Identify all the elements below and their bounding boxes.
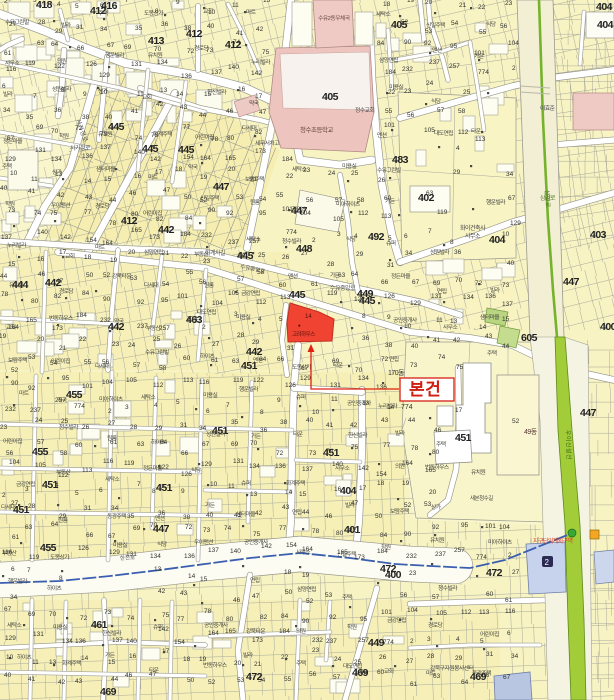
svg-text:공인중개사: 공인중개사 bbox=[244, 538, 269, 546]
svg-text:78: 78 bbox=[312, 528, 320, 535]
svg-text:58: 58 bbox=[360, 669, 368, 676]
svg-text:36: 36 bbox=[454, 249, 462, 256]
svg-text:가든: 가든 bbox=[205, 501, 216, 509]
svg-text:6: 6 bbox=[206, 408, 210, 415]
svg-text:77: 77 bbox=[383, 442, 391, 449]
svg-text:어린이집: 어린이집 bbox=[143, 209, 162, 217]
svg-text:67: 67 bbox=[108, 533, 116, 540]
svg-text:미아하이츠: 미아하이츠 bbox=[99, 395, 124, 403]
svg-text:112: 112 bbox=[256, 299, 267, 306]
svg-text:137: 137 bbox=[502, 301, 513, 308]
svg-text:10: 10 bbox=[502, 231, 510, 238]
svg-text:7: 7 bbox=[137, 481, 141, 488]
svg-text:63: 63 bbox=[25, 524, 33, 531]
svg-text:104: 104 bbox=[212, 300, 223, 307]
svg-text:유치원: 유치원 bbox=[9, 281, 23, 289]
svg-text:82: 82 bbox=[349, 527, 357, 534]
svg-text:21: 21 bbox=[254, 661, 262, 668]
svg-text:44: 44 bbox=[302, 509, 310, 516]
svg-text:7: 7 bbox=[33, 93, 37, 100]
svg-text:173: 173 bbox=[149, 234, 160, 241]
svg-text:92: 92 bbox=[28, 385, 36, 392]
svg-text:5: 5 bbox=[480, 638, 484, 645]
svg-text:40: 40 bbox=[306, 417, 314, 424]
svg-text:본건: 본건 bbox=[409, 380, 441, 399]
svg-text:사무소: 사무소 bbox=[335, 464, 350, 472]
svg-text:74: 74 bbox=[127, 615, 135, 622]
svg-text:14: 14 bbox=[285, 489, 293, 496]
svg-text:8: 8 bbox=[450, 239, 454, 246]
svg-text:61: 61 bbox=[4, 50, 12, 57]
svg-text:136: 136 bbox=[275, 463, 286, 470]
svg-text:95: 95 bbox=[461, 522, 469, 529]
svg-text:38: 38 bbox=[82, 114, 90, 121]
svg-text:어린이집: 어린이집 bbox=[3, 437, 22, 445]
svg-text:35: 35 bbox=[135, 25, 143, 32]
svg-text:142: 142 bbox=[358, 465, 369, 472]
svg-text:23: 23 bbox=[404, 88, 412, 95]
svg-text:44: 44 bbox=[109, 197, 117, 204]
svg-text:41: 41 bbox=[28, 676, 36, 683]
svg-text:84: 84 bbox=[185, 215, 193, 222]
svg-text:47: 47 bbox=[56, 278, 64, 285]
svg-text:42: 42 bbox=[158, 588, 166, 595]
svg-text:2: 2 bbox=[508, 552, 512, 559]
svg-text:25: 25 bbox=[153, 336, 161, 343]
svg-text:38: 38 bbox=[183, 514, 191, 521]
svg-text:43: 43 bbox=[75, 678, 83, 685]
svg-text:129: 129 bbox=[99, 72, 110, 79]
svg-text:483: 483 bbox=[392, 154, 409, 166]
svg-text:54: 54 bbox=[162, 281, 170, 288]
svg-text:4: 4 bbox=[57, 1, 61, 8]
svg-text:성원빌라: 성원빌라 bbox=[206, 430, 226, 438]
svg-text:75: 75 bbox=[253, 531, 261, 538]
svg-text:사무소: 사무소 bbox=[296, 548, 311, 556]
svg-text:95: 95 bbox=[360, 616, 368, 623]
svg-text:34: 34 bbox=[511, 653, 519, 660]
svg-text:세탁소: 세탁소 bbox=[376, 10, 391, 18]
svg-text:사무소: 사무소 bbox=[5, 59, 20, 67]
svg-text:빌라: 빌라 bbox=[490, 286, 501, 294]
svg-text:75: 75 bbox=[456, 364, 464, 371]
svg-text:6: 6 bbox=[404, 233, 408, 240]
svg-text:774: 774 bbox=[476, 554, 487, 561]
svg-text:주택: 주택 bbox=[436, 441, 446, 448]
svg-text:78: 78 bbox=[204, 608, 212, 615]
svg-text:90: 90 bbox=[302, 618, 310, 625]
svg-text:34: 34 bbox=[506, 171, 514, 178]
svg-text:42: 42 bbox=[350, 422, 358, 429]
svg-text:142: 142 bbox=[150, 156, 161, 163]
svg-text:136: 136 bbox=[82, 153, 93, 160]
svg-text:55: 55 bbox=[186, 269, 194, 276]
svg-text:44: 44 bbox=[502, 343, 510, 350]
svg-text:경로당: 경로당 bbox=[194, 44, 209, 52]
svg-text:41: 41 bbox=[326, 422, 334, 429]
svg-text:의원: 의원 bbox=[296, 627, 306, 635]
svg-text:한신빌라: 한신빌라 bbox=[348, 431, 368, 439]
svg-text:40: 40 bbox=[105, 114, 113, 121]
svg-text:24: 24 bbox=[35, 417, 43, 424]
svg-text:31: 31 bbox=[84, 505, 92, 512]
svg-text:154: 154 bbox=[183, 154, 194, 161]
svg-text:58: 58 bbox=[159, 365, 167, 372]
svg-text:70: 70 bbox=[455, 277, 463, 284]
svg-text:세탁소: 세탁소 bbox=[7, 621, 22, 629]
svg-text:5: 5 bbox=[279, 316, 283, 323]
svg-text:164: 164 bbox=[208, 630, 219, 637]
svg-text:14: 14 bbox=[81, 655, 89, 662]
svg-text:184: 184 bbox=[385, 69, 396, 76]
svg-text:36: 36 bbox=[362, 335, 370, 342]
svg-text:46: 46 bbox=[233, 597, 241, 604]
svg-text:금강연립: 금강연립 bbox=[387, 616, 406, 624]
svg-text:50: 50 bbox=[375, 513, 383, 520]
svg-text:38: 38 bbox=[385, 342, 393, 349]
svg-text:49동: 49동 bbox=[524, 428, 538, 436]
svg-text:46: 46 bbox=[129, 190, 137, 197]
svg-text:257: 257 bbox=[449, 63, 460, 70]
svg-text:78: 78 bbox=[411, 445, 419, 452]
svg-text:112: 112 bbox=[458, 129, 469, 136]
svg-text:9: 9 bbox=[176, 0, 180, 6]
svg-text:67: 67 bbox=[107, 42, 115, 49]
svg-text:472: 472 bbox=[486, 567, 503, 579]
svg-text:11: 11 bbox=[331, 396, 338, 403]
svg-text:25: 25 bbox=[351, 170, 359, 177]
svg-text:삼양연립: 삼양연립 bbox=[379, 56, 398, 64]
svg-text:232: 232 bbox=[201, 232, 212, 239]
svg-text:140: 140 bbox=[230, 548, 241, 555]
svg-text:22: 22 bbox=[79, 336, 87, 343]
svg-text:42: 42 bbox=[453, 337, 461, 344]
svg-text:미용실: 미용실 bbox=[236, 313, 250, 321]
svg-text:14: 14 bbox=[176, 91, 184, 98]
svg-text:샘터마을: 샘터마을 bbox=[236, 510, 256, 518]
svg-text:400: 400 bbox=[600, 321, 614, 333]
svg-text:교회: 교회 bbox=[142, 93, 152, 101]
svg-text:67: 67 bbox=[4, 606, 12, 613]
svg-text:113: 113 bbox=[381, 213, 392, 220]
svg-text:67: 67 bbox=[202, 441, 210, 448]
svg-text:447: 447 bbox=[563, 276, 580, 288]
svg-text:53: 53 bbox=[236, 194, 244, 201]
svg-text:유치원: 유치원 bbox=[471, 468, 485, 476]
svg-text:가든: 가든 bbox=[474, 52, 485, 60]
svg-text:404: 404 bbox=[597, 19, 614, 31]
svg-text:136: 136 bbox=[485, 293, 496, 300]
svg-text:28: 28 bbox=[28, 503, 36, 510]
svg-text:55: 55 bbox=[276, 192, 284, 199]
svg-text:11: 11 bbox=[228, 483, 235, 490]
svg-text:20: 20 bbox=[37, 336, 45, 343]
svg-text:134: 134 bbox=[51, 156, 62, 163]
svg-text:다세대: 다세대 bbox=[242, 124, 256, 132]
svg-text:수유2동우체국: 수유2동우체국 bbox=[318, 14, 351, 22]
svg-text:타운: 타운 bbox=[149, 666, 160, 674]
svg-text:445: 445 bbox=[289, 289, 306, 301]
svg-text:50: 50 bbox=[86, 272, 94, 279]
svg-text:75: 75 bbox=[162, 612, 170, 619]
svg-text:142: 142 bbox=[251, 70, 262, 77]
svg-text:54: 54 bbox=[259, 196, 267, 203]
svg-text:번동하우스: 번동하우스 bbox=[49, 314, 74, 322]
svg-text:113: 113 bbox=[280, 294, 291, 301]
svg-text:55: 55 bbox=[479, 29, 487, 36]
svg-text:42: 42 bbox=[57, 192, 65, 199]
svg-text:77: 77 bbox=[183, 124, 191, 131]
svg-text:131: 131 bbox=[131, 61, 142, 68]
svg-text:13: 13 bbox=[49, 659, 57, 666]
svg-text:다세대: 다세대 bbox=[144, 281, 158, 289]
svg-text:화계주택: 화계주택 bbox=[286, 479, 305, 487]
svg-text:보람주택: 보람주택 bbox=[245, 175, 264, 183]
svg-text:청수초등학교: 청수초등학교 bbox=[300, 125, 333, 134]
svg-text:69: 69 bbox=[28, 611, 36, 618]
svg-text:4: 4 bbox=[258, 316, 262, 323]
svg-text:58: 58 bbox=[458, 108, 466, 115]
svg-text:15: 15 bbox=[200, 576, 208, 583]
svg-text:18: 18 bbox=[183, 656, 191, 663]
svg-text:57: 57 bbox=[237, 276, 245, 283]
svg-text:29: 29 bbox=[155, 425, 163, 432]
svg-text:69: 69 bbox=[133, 525, 141, 532]
svg-text:77: 77 bbox=[279, 525, 287, 532]
svg-text:15: 15 bbox=[502, 316, 510, 323]
svg-text:행운빌라: 행운빌라 bbox=[8, 577, 28, 585]
svg-text:95: 95 bbox=[62, 375, 70, 382]
svg-text:수유그린빌: 수유그린빌 bbox=[377, 166, 401, 174]
svg-text:56: 56 bbox=[309, 671, 317, 678]
svg-text:451: 451 bbox=[455, 432, 472, 444]
svg-text:타운: 타운 bbox=[333, 361, 344, 369]
svg-text:112: 112 bbox=[358, 210, 369, 217]
svg-text:54: 54 bbox=[451, 20, 459, 27]
svg-text:237: 237 bbox=[435, 551, 446, 558]
svg-text:137: 137 bbox=[208, 547, 219, 554]
svg-text:금강연립: 금강연립 bbox=[16, 480, 35, 488]
svg-text:90: 90 bbox=[404, 531, 412, 538]
svg-text:26: 26 bbox=[174, 343, 182, 350]
svg-text:15: 15 bbox=[104, 176, 112, 183]
svg-text:번동하우스: 번동하우스 bbox=[425, 463, 450, 471]
svg-text:418: 418 bbox=[36, 0, 53, 11]
svg-text:13: 13 bbox=[154, 566, 162, 573]
svg-text:도봉상가: 도봉상가 bbox=[144, 9, 164, 17]
svg-text:약국: 약국 bbox=[114, 317, 125, 325]
svg-text:36: 36 bbox=[260, 427, 268, 434]
svg-text:18: 18 bbox=[175, 166, 183, 173]
svg-text:27: 27 bbox=[108, 420, 116, 427]
svg-text:신일주택: 신일주택 bbox=[200, 194, 219, 202]
svg-text:원룸: 원룸 bbox=[107, 434, 118, 442]
svg-text:112: 112 bbox=[461, 609, 472, 616]
svg-text:미용실: 미용실 bbox=[53, 623, 67, 631]
svg-text:74: 74 bbox=[326, 448, 334, 455]
svg-text:화계주택: 화계주택 bbox=[62, 659, 81, 667]
svg-text:38: 38 bbox=[184, 25, 192, 32]
svg-text:미아하이츠: 미아하이츠 bbox=[488, 538, 513, 546]
svg-text:6: 6 bbox=[2, 83, 6, 90]
svg-text:맨션: 맨션 bbox=[155, 514, 165, 522]
svg-text:119: 119 bbox=[124, 460, 135, 467]
svg-text:새본청수길: 새본청수길 bbox=[470, 494, 493, 502]
svg-text:66: 66 bbox=[181, 450, 189, 457]
svg-text:교회: 교회 bbox=[384, 667, 394, 675]
svg-text:69: 69 bbox=[231, 441, 239, 448]
svg-text:70: 70 bbox=[250, 440, 258, 447]
svg-text:가든: 가든 bbox=[330, 271, 341, 279]
svg-text:세탁소: 세탁소 bbox=[105, 475, 120, 483]
svg-text:15: 15 bbox=[108, 659, 116, 666]
svg-text:세탁소: 세탁소 bbox=[292, 165, 307, 173]
svg-text:137: 137 bbox=[112, 637, 123, 644]
svg-text:455: 455 bbox=[66, 389, 83, 401]
svg-text:지구단위계획구역: 지구단위계획구역 bbox=[533, 537, 572, 545]
svg-text:학원: 학원 bbox=[59, 132, 69, 140]
svg-text:상가: 상가 bbox=[52, 168, 63, 176]
svg-text:10: 10 bbox=[10, 170, 18, 177]
svg-text:경로당: 경로당 bbox=[428, 621, 443, 629]
svg-text:43: 43 bbox=[282, 504, 290, 511]
svg-text:90: 90 bbox=[404, 39, 412, 46]
svg-text:10: 10 bbox=[312, 409, 320, 416]
svg-text:61: 61 bbox=[505, 597, 513, 604]
svg-text:90: 90 bbox=[208, 207, 216, 214]
svg-text:미용실: 미용실 bbox=[389, 83, 403, 91]
svg-text:5: 5 bbox=[75, 3, 79, 10]
svg-text:40: 40 bbox=[207, 23, 215, 30]
svg-text:23: 23 bbox=[409, 570, 417, 577]
svg-text:2: 2 bbox=[202, 324, 206, 331]
svg-text:47: 47 bbox=[259, 109, 267, 116]
svg-text:식당: 식당 bbox=[486, 20, 497, 28]
svg-text:공인중개사: 공인중개사 bbox=[204, 621, 229, 629]
svg-text:동광주택: 동광주택 bbox=[107, 513, 126, 520]
svg-text:주택: 주택 bbox=[2, 163, 12, 170]
svg-text:455: 455 bbox=[32, 446, 49, 458]
svg-text:57: 57 bbox=[37, 439, 45, 446]
svg-text:누리빌라: 누리빌라 bbox=[378, 402, 398, 410]
svg-text:129: 129 bbox=[109, 549, 120, 556]
svg-text:2: 2 bbox=[108, 408, 112, 415]
svg-text:교회: 교회 bbox=[65, 252, 75, 260]
svg-text:14: 14 bbox=[188, 573, 196, 580]
svg-text:101: 101 bbox=[82, 383, 93, 390]
svg-text:14: 14 bbox=[479, 324, 487, 331]
svg-text:70: 70 bbox=[154, 46, 162, 53]
svg-text:119: 119 bbox=[437, 209, 448, 216]
svg-text:40: 40 bbox=[206, 512, 214, 519]
svg-text:13: 13 bbox=[250, 491, 258, 498]
svg-text:56: 56 bbox=[407, 112, 415, 119]
svg-text:82: 82 bbox=[156, 216, 164, 223]
svg-text:57: 57 bbox=[432, 594, 440, 601]
svg-text:18: 18 bbox=[84, 254, 92, 261]
svg-text:19: 19 bbox=[110, 257, 118, 264]
svg-text:6: 6 bbox=[99, 487, 103, 494]
svg-text:63: 63 bbox=[137, 441, 145, 448]
svg-text:131: 131 bbox=[33, 631, 44, 638]
svg-text:정든마을: 정든마을 bbox=[3, 137, 23, 145]
svg-text:타운: 타운 bbox=[293, 430, 304, 438]
svg-text:19: 19 bbox=[199, 656, 207, 663]
svg-text:2: 2 bbox=[512, 65, 516, 72]
svg-text:삼양연립: 삼양연립 bbox=[297, 585, 316, 593]
svg-text:11: 11 bbox=[32, 659, 39, 666]
svg-text:66: 66 bbox=[277, 356, 285, 363]
svg-text:119: 119 bbox=[233, 377, 244, 384]
svg-text:6: 6 bbox=[507, 630, 511, 637]
svg-text:29: 29 bbox=[55, 28, 63, 35]
svg-text:56: 56 bbox=[400, 592, 408, 599]
svg-text:수유그린빌: 수유그린빌 bbox=[5, 18, 29, 26]
svg-text:27: 27 bbox=[406, 658, 414, 665]
svg-text:다세대: 다세대 bbox=[1, 503, 15, 511]
svg-text:34: 34 bbox=[10, 594, 18, 601]
svg-text:113: 113 bbox=[183, 377, 194, 384]
svg-text:맨션: 맨션 bbox=[288, 272, 298, 280]
svg-text:61: 61 bbox=[12, 534, 20, 541]
svg-text:73: 73 bbox=[104, 609, 112, 616]
svg-text:26: 26 bbox=[82, 424, 90, 431]
svg-text:맨션: 맨션 bbox=[432, 46, 442, 54]
svg-text:40: 40 bbox=[4, 672, 12, 679]
svg-text:403: 403 bbox=[590, 229, 607, 241]
svg-text:119: 119 bbox=[25, 60, 36, 67]
svg-text:184: 184 bbox=[76, 312, 87, 319]
svg-text:78: 78 bbox=[109, 220, 117, 227]
svg-text:학원: 학원 bbox=[381, 543, 391, 551]
svg-text:다세대: 다세대 bbox=[95, 362, 109, 370]
svg-text:24: 24 bbox=[238, 252, 246, 259]
svg-text:129: 129 bbox=[410, 300, 421, 307]
svg-text:55: 55 bbox=[284, 676, 292, 683]
svg-text:50: 50 bbox=[285, 589, 293, 596]
svg-text:164: 164 bbox=[200, 155, 211, 162]
svg-text:80: 80 bbox=[432, 449, 440, 456]
svg-text:134: 134 bbox=[463, 294, 474, 301]
svg-text:134: 134 bbox=[150, 553, 161, 560]
svg-text:9: 9 bbox=[181, 488, 185, 495]
svg-text:43: 43 bbox=[180, 590, 188, 597]
svg-text:101: 101 bbox=[381, 609, 392, 616]
svg-text:34: 34 bbox=[3, 107, 11, 114]
svg-text:19: 19 bbox=[407, 0, 415, 4]
svg-text:4: 4 bbox=[456, 636, 460, 643]
svg-text:세무서차고: 세무서차고 bbox=[255, 139, 280, 147]
svg-text:154: 154 bbox=[286, 542, 297, 549]
svg-text:삼양연립: 삼양연립 bbox=[144, 248, 163, 256]
svg-text:60: 60 bbox=[75, 442, 83, 449]
svg-text:경로당: 경로당 bbox=[95, 202, 110, 210]
svg-text:56: 56 bbox=[500, 23, 508, 30]
svg-text:사무소: 사무소 bbox=[443, 323, 458, 331]
svg-text:23: 23 bbox=[203, 258, 211, 265]
svg-text:136: 136 bbox=[376, 384, 387, 391]
svg-text:126: 126 bbox=[86, 61, 97, 68]
svg-text:22: 22 bbox=[181, 253, 189, 260]
svg-text:129: 129 bbox=[5, 156, 16, 163]
svg-text:232: 232 bbox=[402, 66, 413, 73]
svg-text:빌라: 빌라 bbox=[3, 90, 14, 98]
svg-text:74: 74 bbox=[233, 39, 241, 46]
svg-text:774: 774 bbox=[187, 316, 198, 323]
svg-text:19: 19 bbox=[302, 572, 310, 579]
svg-text:식당: 식당 bbox=[191, 466, 202, 474]
svg-text:19: 19 bbox=[0, 333, 7, 340]
